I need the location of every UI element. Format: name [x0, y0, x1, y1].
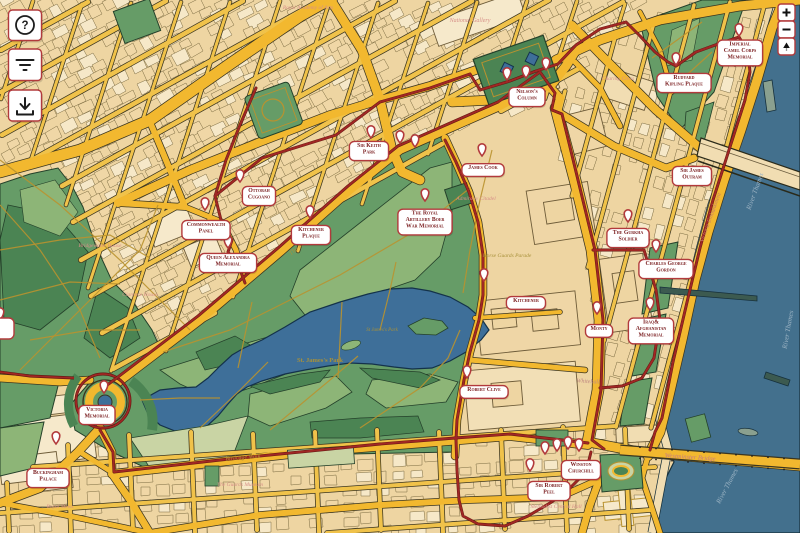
svg-text:Horse Guards Parade: Horse Guards Parade [482, 253, 532, 259]
svg-text:War Memorial: War Memorial [406, 224, 444, 230]
svg-text:Royal Academy of Arts: Royal Academy of Arts [282, 4, 333, 11]
svg-text:St James's Park: St James's Park [366, 328, 398, 333]
svg-text:Memorial: Memorial [638, 333, 663, 339]
svg-text:Ottobah: Ottobah [248, 188, 270, 194]
svg-text:Cugoano: Cugoano [248, 194, 270, 200]
svg-text:Memorial: Memorial [727, 55, 752, 61]
svg-text:Charing Cross: Charing Cross [602, 76, 634, 82]
svg-text:Kitchener: Kitchener [298, 227, 324, 233]
svg-text:Plaque: Plaque [302, 233, 320, 239]
svg-text:Winston: Winston [570, 462, 591, 468]
svg-text:Park: Park [363, 149, 376, 155]
svg-text:Camel Corps: Camel Corps [724, 48, 757, 54]
svg-text:Iraq&: Iraq& [643, 320, 659, 326]
svg-text:Imperial: Imperial [729, 42, 750, 48]
svg-text:Victoria: Victoria [86, 407, 108, 413]
svg-text:Commonwealth: Commonwealth [187, 222, 226, 228]
svg-text:Peel: Peel [543, 489, 555, 495]
svg-text:Rudyard: Rudyard [673, 75, 694, 81]
svg-text:Queen Alexandra: Queen Alexandra [206, 255, 250, 261]
svg-text:Soldier: Soldier [618, 236, 637, 242]
svg-text:Clarence House: Clarence House [122, 292, 158, 298]
svg-text:Sir Keith: Sir Keith [357, 143, 382, 149]
svg-text:Sir Robert: Sir Robert [535, 483, 563, 489]
svg-text:Palace: Palace [39, 476, 57, 482]
svg-text:Column: Column [517, 95, 537, 101]
svg-text:Outram: Outram [682, 174, 702, 180]
svg-text:Panel: Panel [199, 228, 214, 234]
svg-text:Sir James: Sir James [680, 168, 704, 174]
svg-text:?: ? [21, 20, 28, 32]
svg-text:Methodist Central Hall: Methodist Central Hall [529, 504, 582, 510]
svg-text:The Royal: The Royal [412, 211, 439, 217]
svg-text:Memorial: Memorial [84, 413, 109, 419]
svg-text:Kitchener: Kitchener [513, 298, 539, 304]
svg-text:Admiralty Citadel: Admiralty Citadel [455, 196, 496, 202]
svg-text:Monty: Monty [590, 326, 607, 332]
svg-text:Afghanistan: Afghanistan [636, 326, 667, 332]
svg-text:Nelson's: Nelson's [516, 89, 538, 95]
svg-text:Charles George: Charles George [645, 261, 686, 267]
svg-text:Whitehall: Whitehall [576, 378, 600, 385]
svg-text:Kipling Plaque: Kipling Plaque [665, 81, 703, 87]
svg-text:Buckingham: Buckingham [33, 470, 63, 476]
svg-text:The Gurkha: The Gurkha [613, 230, 644, 236]
svg-text:St. James's Park: St. James's Park [297, 357, 343, 364]
svg-text:Royal Mews: Royal Mews [45, 504, 73, 510]
svg-text:National Gallery: National Gallery [449, 18, 491, 24]
svg-text:Churchill: Churchill [568, 468, 594, 474]
svg-text:Memorial: Memorial [215, 261, 240, 267]
svg-text:James Cook: James Cook [468, 165, 498, 171]
svg-text:Robert Clive: Robert Clive [467, 387, 501, 393]
svg-text:Gordon: Gordon [656, 267, 676, 273]
svg-text:Artillery Boer: Artillery Boer [406, 217, 445, 223]
svg-text:Bridgewater House: Bridgewater House [79, 243, 122, 249]
svg-text:The Guards Museum: The Guards Museum [217, 482, 263, 488]
